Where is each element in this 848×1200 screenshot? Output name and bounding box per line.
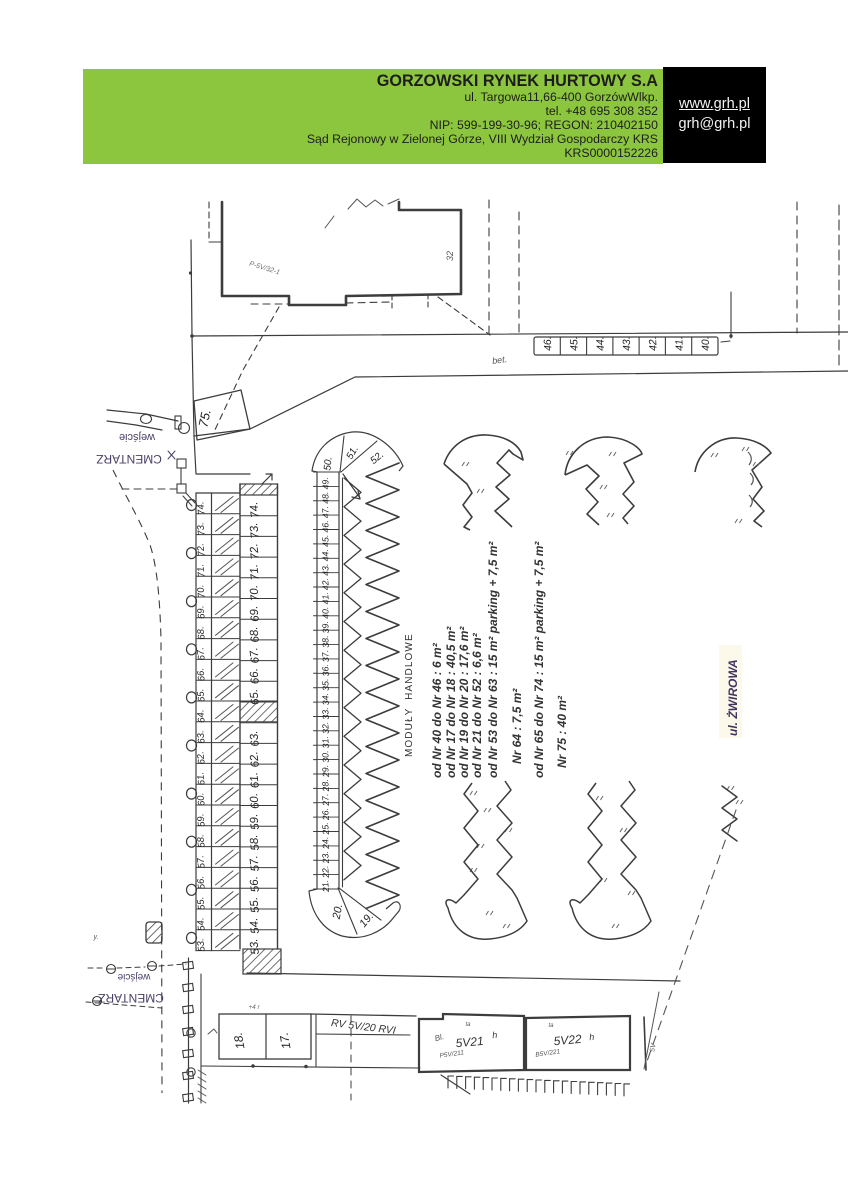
svg-text:5V22: 5V22	[553, 1032, 582, 1048]
svg-text:45.: 45.	[568, 336, 581, 351]
svg-text:68.: 68.	[195, 626, 208, 640]
svg-text:71.: 71.	[248, 563, 262, 580]
svg-text:24.: 24.	[320, 836, 331, 850]
svg-text:73.: 73.	[248, 522, 262, 539]
svg-text:61.: 61.	[195, 771, 208, 785]
svg-text:h: h	[589, 1032, 595, 1042]
svg-text:Nr 64 : 7,5 m²: Nr 64 : 7,5 m²	[510, 688, 524, 764]
svg-text:32: 32	[445, 251, 455, 261]
svg-text:64.: 64.	[195, 709, 208, 723]
svg-text:CMENTARZ: CMENTARZ	[98, 991, 164, 1005]
svg-text:26.: 26.	[320, 808, 331, 822]
svg-text:65.: 65.	[195, 688, 208, 702]
svg-text:69.: 69.	[248, 605, 262, 622]
svg-text:43.: 43.	[320, 563, 331, 576]
svg-text:20.: 20.	[331, 903, 346, 921]
svg-text:56.: 56.	[248, 875, 262, 892]
svg-text:od Nr 40 do Nr 46 : 6 m²: od Nr 40 do Nr 46 : 6 m²	[430, 642, 444, 778]
svg-text:54.: 54.	[248, 917, 262, 934]
svg-text:58.: 58.	[195, 834, 208, 848]
svg-text:41.: 41.	[320, 592, 331, 605]
svg-text:B5V/221: B5V/221	[535, 1048, 561, 1058]
svg-text:32.: 32.	[320, 721, 331, 734]
svg-text:CMENTARZ: CMENTARZ	[96, 452, 162, 466]
svg-text:+4 r: +4 r	[248, 1004, 260, 1011]
svg-text:P5V/211: P5V/211	[439, 1049, 465, 1059]
svg-text:23.: 23.	[320, 851, 331, 865]
svg-text:54.: 54.	[195, 917, 208, 931]
svg-text:ta: ta	[465, 1022, 471, 1028]
svg-text:47.: 47.	[320, 506, 331, 519]
svg-text:62.: 62.	[195, 751, 208, 765]
svg-text:33.: 33.	[320, 707, 331, 720]
svg-text:71.: 71.	[195, 563, 208, 577]
svg-text:63.: 63.	[248, 730, 262, 747]
svg-text:50.: 50.	[322, 456, 334, 471]
svg-text:61.: 61.	[248, 771, 262, 788]
svg-text:wejście: wejście	[117, 971, 151, 982]
svg-text:27.: 27.	[320, 793, 331, 807]
svg-text:42.: 42.	[320, 578, 331, 591]
svg-text:48.: 48.	[320, 491, 331, 504]
svg-text:42.: 42.	[647, 336, 660, 351]
svg-text:53.: 53.	[195, 938, 208, 952]
svg-text:58.: 58.	[248, 834, 262, 851]
svg-text:59.: 59.	[195, 813, 208, 827]
svg-text:28.: 28.	[320, 779, 331, 793]
svg-text:55.: 55.	[195, 896, 208, 910]
svg-text:wejście: wejście	[119, 431, 156, 443]
svg-text:75.: 75.	[195, 408, 213, 429]
svg-text:72.: 72.	[195, 543, 208, 557]
svg-text:73.: 73.	[195, 522, 208, 536]
svg-text:72.: 72.	[248, 543, 262, 560]
svg-text:46.: 46.	[320, 520, 331, 533]
svg-text:67.: 67.	[195, 647, 208, 661]
svg-text:25.: 25.	[320, 822, 331, 836]
svg-text:bet.: bet.	[491, 354, 507, 366]
svg-text:Nr 75 : 40 m²: Nr 75 : 40 m²	[555, 695, 569, 768]
svg-text:MODUŁY HANDLOWE: MODUŁY HANDLOWE	[404, 633, 415, 757]
svg-text:68.: 68.	[248, 626, 262, 643]
svg-text:34.: 34.	[320, 693, 331, 706]
svg-text:5V21: 5V21	[455, 1034, 484, 1050]
svg-text:70.: 70.	[248, 584, 262, 601]
svg-text:29.: 29.	[320, 765, 331, 779]
svg-text:22.: 22.	[320, 865, 331, 879]
svg-text:74.: 74.	[195, 501, 208, 515]
svg-text:36.: 36.	[320, 664, 331, 677]
svg-text:56.: 56.	[195, 875, 208, 889]
svg-text:18.: 18.	[231, 1031, 248, 1050]
svg-text:31.: 31.	[320, 736, 331, 749]
svg-text:35.: 35.	[320, 678, 331, 691]
svg-text:62.: 62.	[248, 751, 262, 768]
svg-text:od Nr 19 do Nr 20 : 17,6 m²: od Nr 19 do Nr 20 : 17,6 m²	[457, 626, 471, 778]
svg-text:h: h	[492, 1030, 498, 1040]
svg-text:41.: 41.	[673, 336, 686, 351]
svg-text:70.: 70.	[195, 584, 208, 598]
svg-text:49.: 49.	[320, 477, 331, 490]
svg-text:74.: 74.	[248, 501, 262, 518]
svg-text:21.: 21.	[320, 880, 331, 894]
svg-text:39.: 39.	[320, 621, 331, 634]
svg-text:43.: 43.	[621, 336, 634, 351]
svg-text:67.: 67.	[248, 647, 262, 664]
svg-text:40.: 40.	[320, 606, 331, 619]
svg-text:40.: 40.	[700, 336, 713, 351]
svg-text:55.: 55.	[248, 896, 262, 913]
svg-text:44.: 44.	[594, 336, 607, 351]
svg-text:17.: 17.	[277, 1031, 294, 1050]
svg-text:44.: 44.	[320, 549, 331, 562]
svg-text:ta: ta	[548, 1023, 554, 1029]
svg-text:od Nr 53 do Nr 63 : 15 m² park: od Nr 53 do Nr 63 : 15 m² parking + 7,5 …	[486, 541, 500, 778]
svg-text:66.: 66.	[248, 667, 262, 684]
svg-text:51.: 51.	[345, 444, 361, 462]
svg-text:59.: 59.	[248, 813, 262, 830]
svg-text:52.: 52.	[369, 449, 387, 466]
svg-text:37.: 37.	[320, 650, 331, 663]
svg-text:63.: 63.	[195, 730, 208, 744]
svg-text:19.: 19.	[357, 910, 376, 929]
svg-text:60.: 60.	[248, 792, 262, 809]
svg-text:30.: 30.	[320, 750, 331, 763]
svg-text:57.: 57.	[248, 855, 262, 872]
svg-text:P-5V/32-1: P-5V/32-1	[248, 261, 280, 277]
svg-text:y.: y.	[93, 934, 99, 941]
svg-text:Bl.: Bl.	[434, 1032, 445, 1043]
svg-text:od Nr 21 do Nr 52 : 6,6 m²: od Nr 21 do Nr 52 : 6,6 m²	[470, 632, 484, 778]
svg-text:od Nr 17 do Nr 18 : 40,5 m²: od Nr 17 do Nr 18 : 40,5 m²	[444, 626, 458, 778]
svg-text:45.: 45.	[320, 534, 331, 547]
svg-text:66.: 66.	[195, 667, 208, 681]
svg-text:69.: 69.	[195, 605, 208, 619]
svg-text:38.: 38.	[320, 635, 331, 648]
svg-text:46.: 46.	[542, 336, 555, 351]
svg-text:ul. ŻWIROWA: ul. ŻWIROWA	[725, 659, 740, 736]
svg-text:60.: 60.	[195, 792, 208, 806]
svg-text:od Nr 65 do Nr 74 : 15 m² park: od Nr 65 do Nr 74 : 15 m² parking + 7,5 …	[532, 541, 546, 778]
svg-text:57.: 57.	[195, 855, 208, 869]
